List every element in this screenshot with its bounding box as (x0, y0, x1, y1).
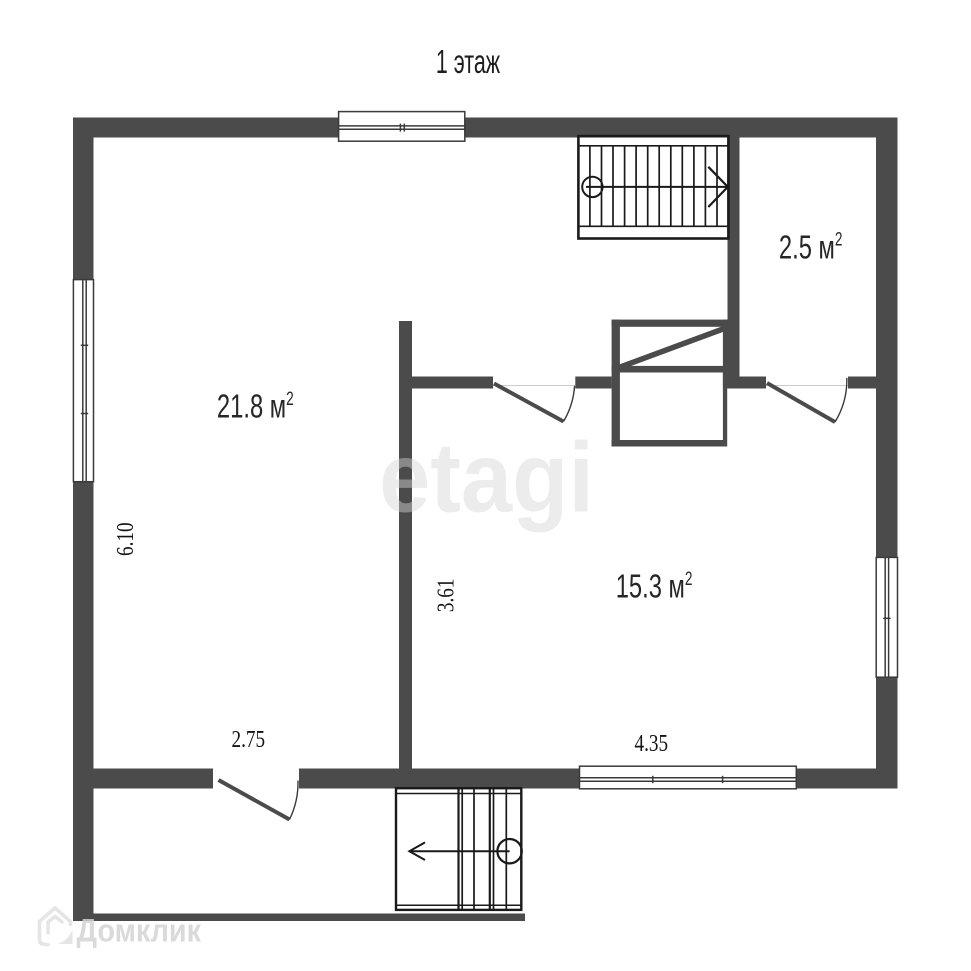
svg-text:Домклик: Домклик (77, 913, 202, 949)
svg-text:2.75: 2.75 (232, 726, 266, 753)
svg-text:6.10: 6.10 (112, 522, 139, 556)
svg-text:1 этаж: 1 этаж (436, 43, 500, 80)
svg-text:2.5 м2: 2.5 м2 (779, 228, 843, 266)
svg-text:3.61: 3.61 (432, 579, 459, 613)
svg-text:4.35: 4.35 (635, 730, 669, 757)
svg-text:15.3 м2: 15.3 м2 (616, 568, 693, 606)
svg-text:21.8 м2: 21.8 м2 (217, 388, 294, 426)
svg-text:etagi: etagi (379, 422, 594, 533)
